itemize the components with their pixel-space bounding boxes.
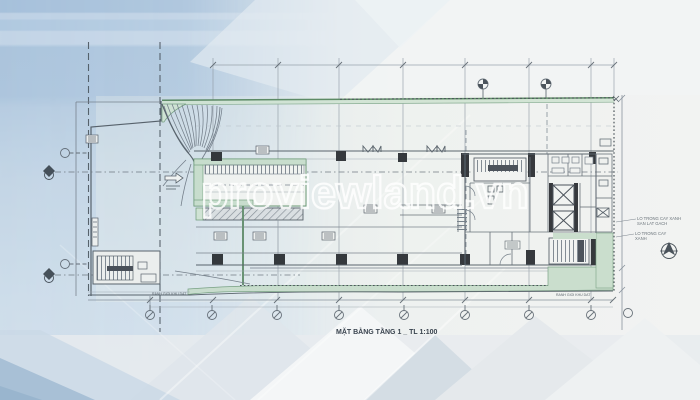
svg-text:XANH: XANH — [635, 236, 647, 241]
svg-text:SAN LAT GACH: SAN LAT GACH — [637, 221, 667, 226]
svg-text:RANH GIOI KHU DAT: RANH GIOI KHU DAT — [556, 293, 591, 297]
svg-text:proviewland.vn: proviewland.vn — [201, 167, 529, 218]
svg-text:RANH GIOI KHU DAT: RANH GIOI KHU DAT — [152, 292, 187, 296]
